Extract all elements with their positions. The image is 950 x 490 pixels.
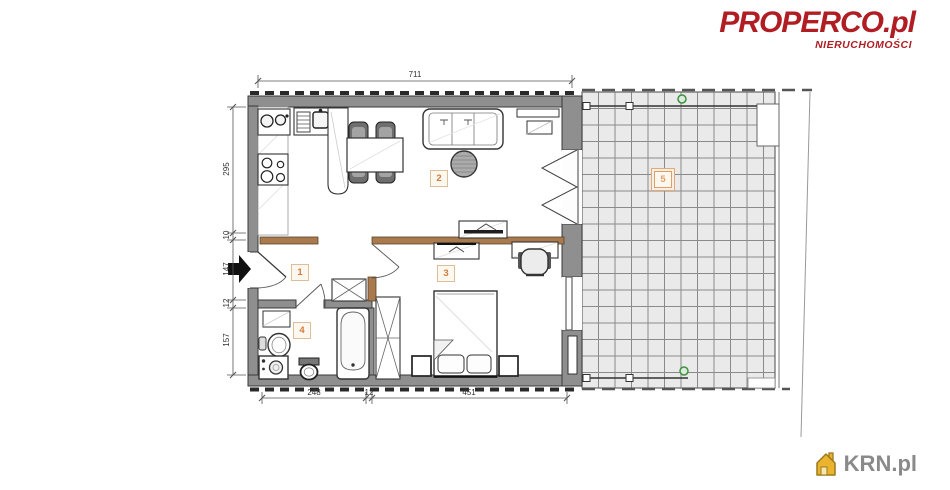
drain-marker	[678, 95, 686, 103]
kitchen-furniture	[258, 107, 348, 235]
krn-watermark-text: KRN.pl	[844, 451, 917, 477]
room-label-5-balcony: 5	[654, 171, 672, 188]
dim-left-295: 295	[222, 151, 232, 187]
dim-left-147: 147	[222, 251, 232, 287]
dim-left-12: 12	[222, 285, 232, 321]
radiator	[568, 336, 577, 374]
balcony-area	[582, 90, 812, 437]
properco-logo-tagline: NIERUCHOMOŚCI	[719, 40, 915, 51]
room-label-2-living-room: 2	[430, 170, 448, 187]
properco-logo: PROPERCO.pl NIERUCHOMOŚCI	[719, 8, 915, 51]
tv	[464, 230, 503, 234]
room-label-3-bedroom: 3	[437, 265, 455, 282]
pillow	[438, 355, 464, 373]
desk-chair	[521, 249, 548, 275]
bedroom-furniture	[376, 242, 558, 379]
pillow	[467, 355, 491, 373]
drain-marker	[680, 367, 688, 375]
nightstand	[499, 356, 518, 376]
dim-bottom-248: 248	[298, 388, 330, 398]
wall-shelf	[517, 109, 559, 117]
properco-logo-text: PROPERCO.pl	[719, 8, 915, 38]
dim-left-10: 10	[222, 217, 232, 253]
dim-bottom-451: 451	[453, 388, 485, 398]
bathroom-fixtures	[259, 308, 369, 380]
floorplan-drawing	[0, 0, 950, 490]
dining-set	[347, 122, 403, 183]
krn-watermark: KRN.pl	[813, 450, 917, 478]
nightstand	[412, 356, 431, 376]
room-label-4-bathroom: 4	[293, 322, 311, 339]
dim-left-157: 157	[222, 322, 232, 358]
entrance-door	[247, 252, 286, 288]
dim-top: 711	[397, 70, 433, 80]
site-boundary-line	[801, 92, 810, 437]
floorplan-page: PROPERCO.pl NIERUCHOMOŚCI 711 248 12 451…	[0, 0, 950, 490]
dim-bottom-12: 12	[360, 388, 378, 398]
room-label-1-hallway: 1	[291, 264, 309, 281]
hall-wardrobe	[332, 279, 366, 301]
house-icon	[813, 450, 839, 478]
balcony-planter	[757, 104, 779, 146]
